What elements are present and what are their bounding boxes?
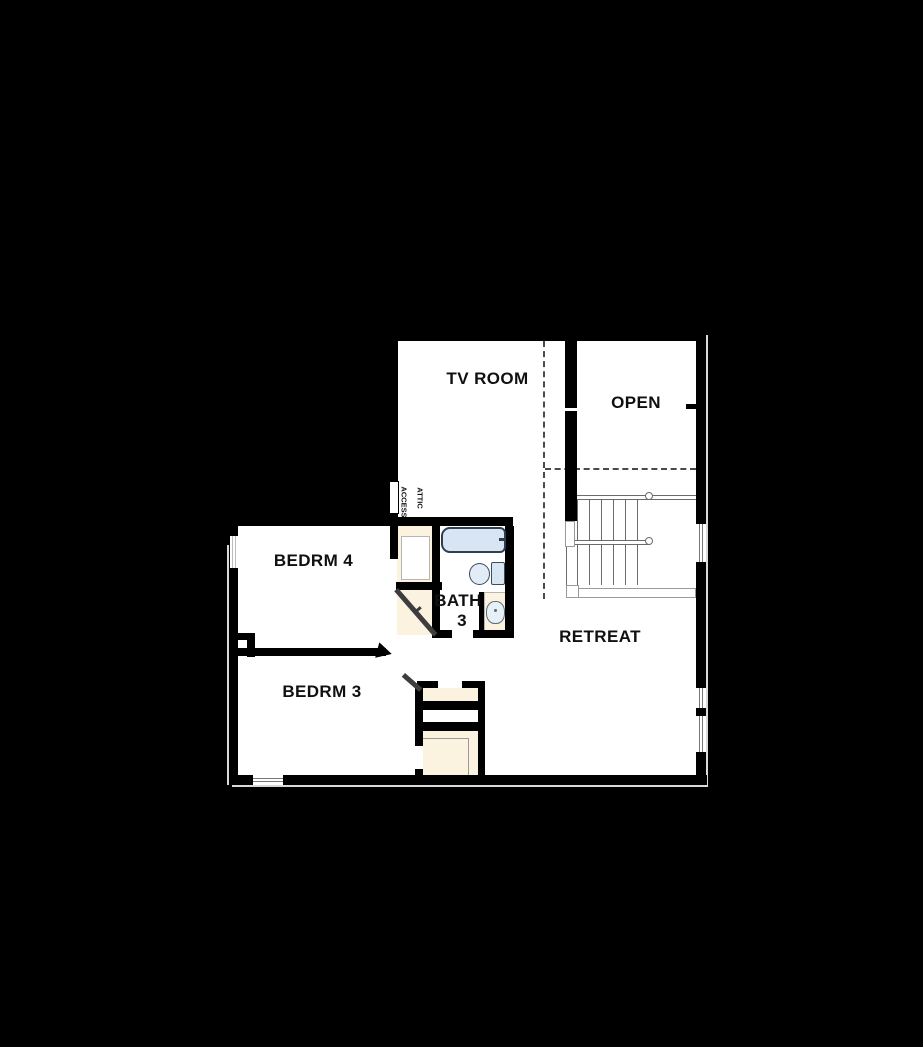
sink-drain bbox=[494, 609, 497, 612]
wall-divider-seam bbox=[565, 408, 577, 411]
stair-wall-foot bbox=[565, 521, 575, 547]
stair-rail-top-1 bbox=[574, 495, 696, 496]
wall-bedrm4-top bbox=[230, 517, 513, 526]
window-right-2 bbox=[696, 688, 706, 708]
stair-tread bbox=[601, 500, 602, 540]
wall-top bbox=[383, 333, 706, 341]
closet-shelf-1 bbox=[423, 701, 478, 710]
stair-tread bbox=[601, 545, 602, 585]
stair-tread bbox=[625, 545, 626, 585]
wall-bath-right bbox=[505, 526, 514, 638]
bedrm4-door-nook bbox=[401, 536, 430, 580]
stair-tread bbox=[589, 545, 590, 585]
room-label-bath: BATH bbox=[428, 591, 488, 611]
closet-inner-line-h bbox=[423, 738, 469, 739]
wall-notch-v bbox=[247, 633, 255, 657]
stair-tread bbox=[589, 500, 590, 540]
wall-bedroom-divider bbox=[238, 648, 386, 656]
closet-shelf-2 bbox=[423, 722, 478, 731]
bathtub-faucet bbox=[499, 538, 504, 541]
attic-access-label: ATTIC ACCESS bbox=[394, 480, 430, 516]
room-label-bedrm4: BEDRM 4 bbox=[250, 551, 377, 571]
attic-access-line1: ATTIC bbox=[416, 487, 425, 509]
stair-newel-top bbox=[645, 492, 653, 500]
stair-tread bbox=[637, 500, 638, 540]
attic-access-line2: ACCESS bbox=[400, 486, 409, 517]
room-label-tv-room: TV ROOM bbox=[420, 369, 555, 389]
stair-rail-mid-1 bbox=[565, 540, 650, 541]
closet-wall-right bbox=[478, 681, 485, 775]
stair-tread bbox=[577, 545, 578, 585]
window-right-1 bbox=[696, 524, 706, 562]
wall-open-divider bbox=[565, 341, 577, 521]
room-label-bath-number: 3 bbox=[432, 611, 492, 631]
stair-tread bbox=[577, 500, 578, 540]
bathtub bbox=[441, 527, 506, 553]
wall-bedrm4-right-upper bbox=[390, 517, 398, 559]
stair-landing-band bbox=[578, 588, 696, 598]
room-label-open: OPEN bbox=[601, 393, 671, 413]
window-bottom-wall bbox=[253, 775, 283, 785]
toilet-tank bbox=[491, 562, 505, 585]
outer-edge-right bbox=[706, 335, 708, 787]
closet-wall-tick bbox=[415, 769, 423, 776]
closet-inner-line-v bbox=[468, 738, 469, 775]
closet-wall-left bbox=[415, 686, 423, 746]
stair-tread bbox=[625, 500, 626, 540]
stair-tread bbox=[613, 545, 614, 585]
wall-bottom bbox=[230, 775, 707, 785]
stair-tread bbox=[637, 545, 638, 585]
window-left-wall bbox=[230, 536, 238, 568]
window-right-3 bbox=[696, 716, 706, 752]
outer-edge-bottom bbox=[232, 785, 708, 787]
closet-white-strip bbox=[423, 710, 478, 722]
room-label-bedrm3: BEDRM 3 bbox=[259, 682, 385, 702]
stair-tread bbox=[566, 545, 567, 585]
outer-edge-left bbox=[227, 545, 229, 785]
wall-bedrm4-corner bbox=[396, 582, 442, 590]
stair-newel-mid bbox=[645, 537, 653, 545]
room-label-retreat: RETREAT bbox=[549, 627, 651, 647]
wall-right-tick bbox=[686, 404, 696, 409]
floor-plan: ATTIC ACCESS TV ROOM OPEN BEDRM 4 BATH 3… bbox=[0, 0, 923, 1047]
stair-tread bbox=[613, 500, 614, 540]
stair-rail-top-2 bbox=[574, 499, 696, 500]
toilet-bowl bbox=[469, 563, 490, 585]
